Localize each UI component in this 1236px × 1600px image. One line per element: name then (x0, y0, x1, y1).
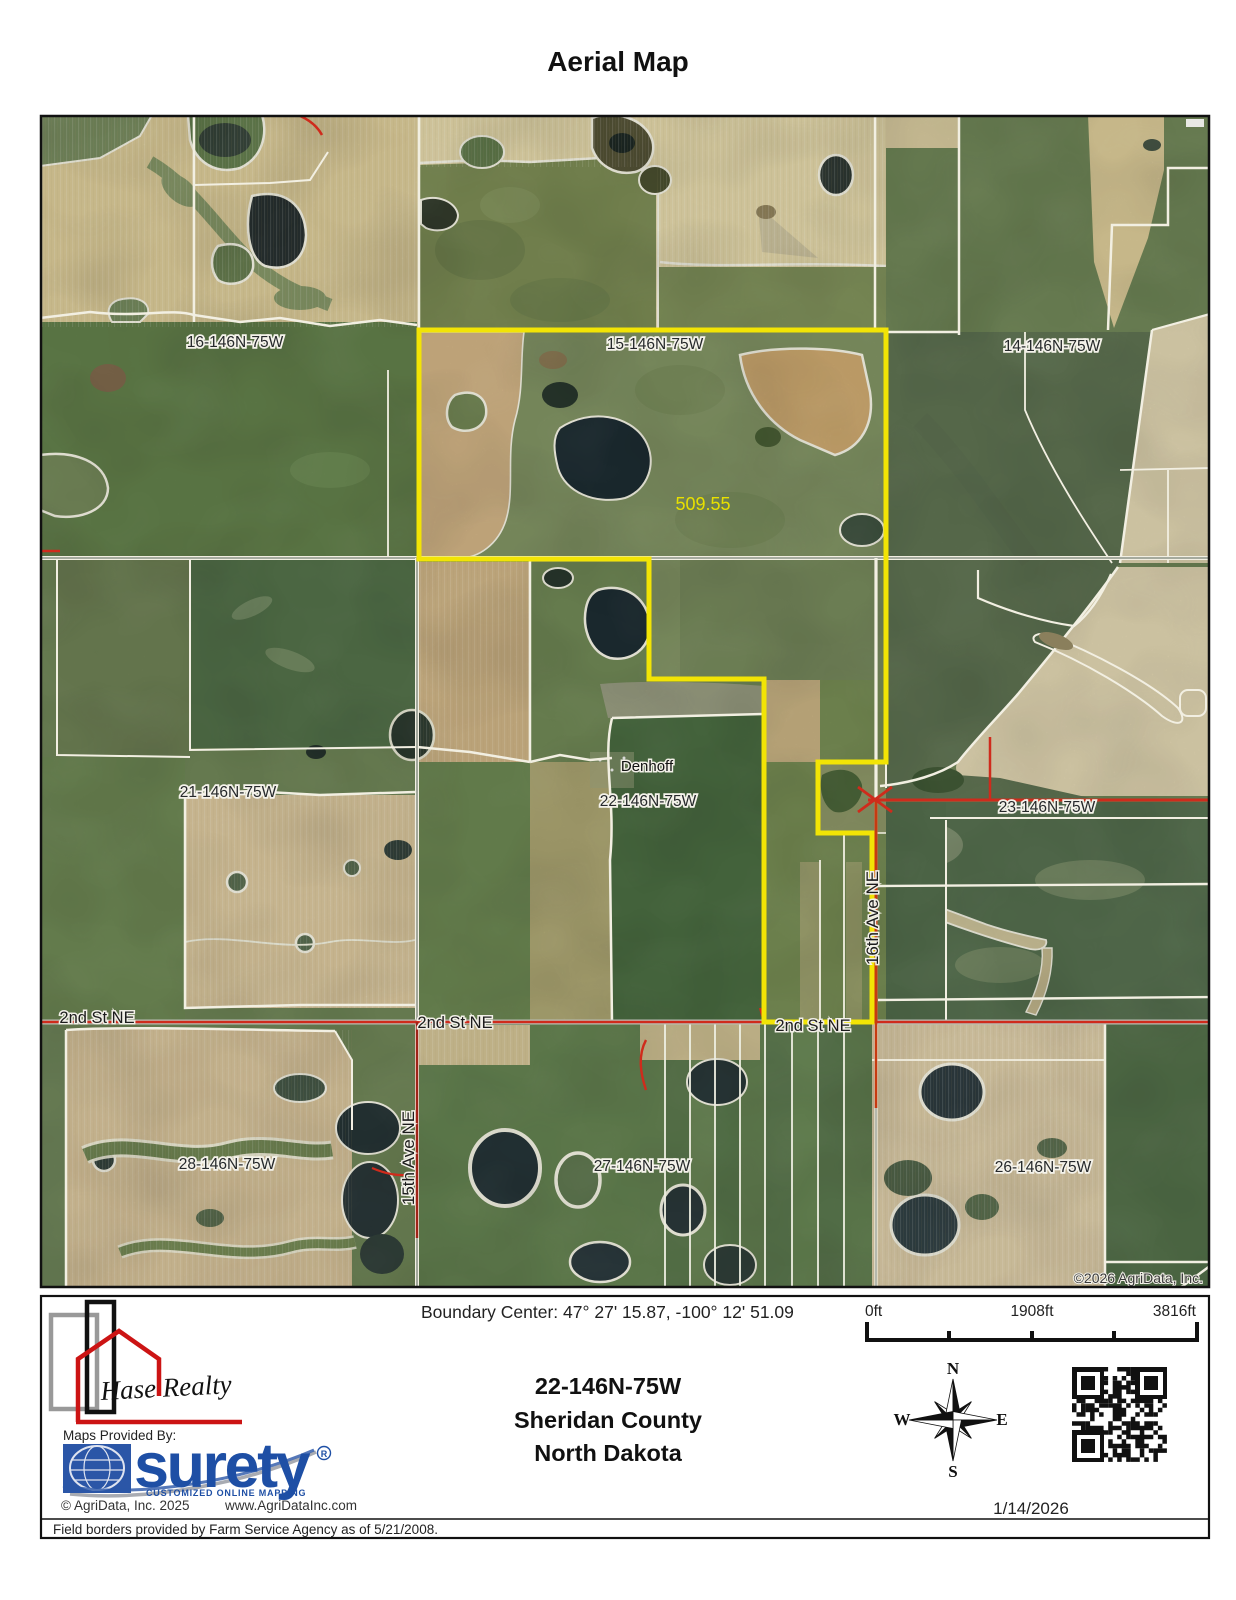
svg-text:23-146N-75W: 23-146N-75W (999, 799, 1096, 816)
svg-text:1908ft: 1908ft (1010, 1303, 1054, 1320)
svg-text:Boundary Center: 47° 27' 15.87: Boundary Center: 47° 27' 15.87, -100° 12… (421, 1302, 794, 1322)
svg-text:22-146N-75W: 22-146N-75W (535, 1373, 682, 1399)
svg-text:0ft: 0ft (865, 1303, 883, 1320)
svg-text:W: W (894, 1410, 911, 1429)
svg-text:CUSTOMIZED ONLINE MAPPING: CUSTOMIZED ONLINE MAPPING (146, 1488, 306, 1498)
svg-text:Field borders provided by Farm: Field borders provided by Farm Service A… (53, 1522, 438, 1537)
svg-text:© AgriData, Inc. 2025: © AgriData, Inc. 2025 (61, 1498, 190, 1513)
svg-text:2nd St NE: 2nd St NE (775, 1017, 850, 1035)
svg-text:www.AgriDataInc.com: www.AgriDataInc.com (224, 1498, 357, 1513)
svg-text:22-146N-75W: 22-146N-75W (600, 793, 697, 810)
svg-text:26-146N-75W: 26-146N-75W (995, 1159, 1092, 1176)
svg-text:©2026 AgriData, Inc.: ©2026 AgriData, Inc. (1074, 1270, 1203, 1286)
svg-text:Sheridan County: Sheridan County (514, 1407, 702, 1433)
svg-text:28-146N-75W: 28-146N-75W (179, 1156, 276, 1173)
svg-text:Denhoff: Denhoff (621, 758, 674, 775)
svg-text:S: S (948, 1462, 957, 1481)
svg-text:1/14/2026: 1/14/2026 (993, 1499, 1069, 1518)
svg-text:15-146N-75W: 15-146N-75W (607, 336, 704, 353)
svg-text:15th Ave NE: 15th Ave NE (399, 1111, 418, 1205)
svg-text:509.55: 509.55 (675, 494, 730, 514)
svg-text:R: R (321, 1449, 328, 1459)
svg-text:2nd St NE: 2nd St NE (59, 1009, 134, 1027)
svg-text:3816ft: 3816ft (1153, 1303, 1197, 1320)
svg-text:27-146N-75W: 27-146N-75W (594, 1158, 691, 1175)
svg-text:2nd St NE: 2nd St NE (417, 1014, 492, 1032)
svg-text:14-146N-75W: 14-146N-75W (1004, 338, 1101, 355)
svg-text:16th Ave NE: 16th Ave NE (863, 871, 882, 965)
svg-text:E: E (996, 1410, 1007, 1429)
svg-text:N: N (947, 1359, 960, 1378)
svg-text:21-146N-75W: 21-146N-75W (180, 784, 277, 801)
svg-text:North Dakota: North Dakota (534, 1440, 682, 1466)
svg-text:16-146N-75W: 16-146N-75W (187, 334, 284, 351)
